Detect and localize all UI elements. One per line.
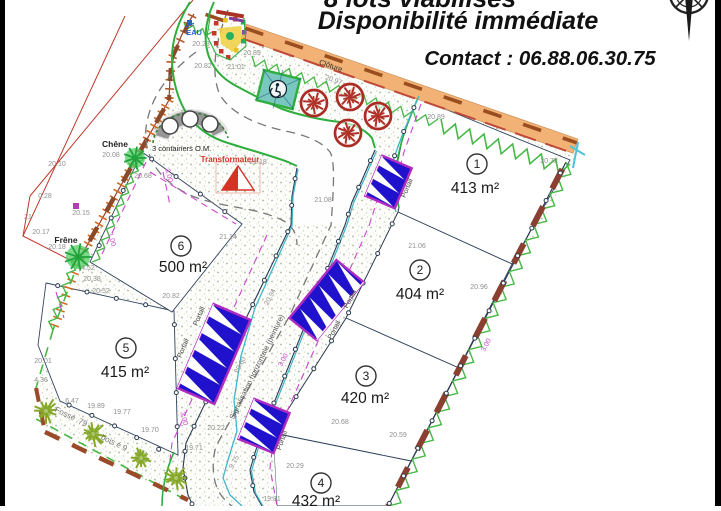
svg-text:20.82: 20.82 xyxy=(162,293,180,300)
svg-text:20.10: 20.10 xyxy=(48,161,66,168)
svg-text:20.22: 20.22 xyxy=(207,425,225,432)
svg-text:20.01: 20.01 xyxy=(34,358,52,365)
svg-text:1: 1 xyxy=(474,157,481,171)
svg-text:21.18: 21.18 xyxy=(249,159,267,166)
svg-text:20.08: 20.08 xyxy=(102,152,120,159)
svg-text:19.71: 19.71 xyxy=(185,445,203,452)
svg-text:20.23: 20.23 xyxy=(192,41,210,48)
svg-text:3 containers O.M.: 3 containers O.M. xyxy=(152,144,211,153)
svg-text:6.47: 6.47 xyxy=(65,398,79,405)
svg-text:19.81: 19.81 xyxy=(263,496,281,503)
svg-text:20.68: 20.68 xyxy=(134,173,152,180)
svg-text:20.18: 20.18 xyxy=(48,244,66,251)
svg-text:5: 5 xyxy=(123,341,130,355)
svg-text:21.08: 21.08 xyxy=(314,197,332,204)
svg-text:21.14: 21.14 xyxy=(219,234,237,241)
svg-text:4.36: 4.36 xyxy=(34,377,48,384)
svg-text:2: 2 xyxy=(417,263,424,277)
svg-text:21.06: 21.06 xyxy=(408,243,426,250)
svg-text:413 m²: 413 m² xyxy=(451,180,499,197)
svg-text:19.70: 19.70 xyxy=(141,427,159,434)
svg-text:420 m²: 420 m² xyxy=(341,390,389,407)
svg-text:20.89: 20.89 xyxy=(427,114,445,121)
svg-text:EAU: EAU xyxy=(186,28,202,37)
svg-text:20.72: 20.72 xyxy=(540,158,558,165)
svg-text:Chêne: Chêne xyxy=(102,139,128,149)
svg-text:19.77: 19.77 xyxy=(113,409,131,416)
svg-text:20.96: 20.96 xyxy=(470,284,488,291)
svg-text:20.68: 20.68 xyxy=(331,419,349,426)
svg-text:20.89: 20.89 xyxy=(243,50,261,57)
svg-text:415 m²: 415 m² xyxy=(101,364,149,381)
svg-text:Disponibilité immédiate: Disponibilité immédiate xyxy=(318,7,599,35)
svg-text:20.59: 20.59 xyxy=(389,432,407,439)
svg-text:500 m²: 500 m² xyxy=(159,259,207,276)
svg-text:432 m²: 432 m² xyxy=(292,493,340,506)
svg-text:20.29: 20.29 xyxy=(286,463,304,470)
svg-text:21.01: 21.01 xyxy=(227,64,245,71)
svg-text:4.52: 4.52 xyxy=(81,265,95,272)
svg-text:20.52: 20.52 xyxy=(92,288,110,295)
svg-text:6: 6 xyxy=(178,239,185,253)
svg-text:20.17: 20.17 xyxy=(32,229,50,236)
svg-text:21: 21 xyxy=(24,214,32,221)
svg-text:20.15: 20.15 xyxy=(72,210,90,217)
svg-text:4: 4 xyxy=(318,476,325,490)
svg-text:404 m²: 404 m² xyxy=(396,286,444,303)
svg-text:19.89: 19.89 xyxy=(87,403,105,410)
svg-text:0.28: 0.28 xyxy=(38,193,52,200)
svg-text:3: 3 xyxy=(363,369,370,383)
svg-text:20.38: 20.38 xyxy=(83,276,101,283)
svg-text:Contact : 06.88.06.30.75: Contact : 06.88.06.30.75 xyxy=(424,47,656,70)
svg-text:20.82: 20.82 xyxy=(194,63,212,70)
